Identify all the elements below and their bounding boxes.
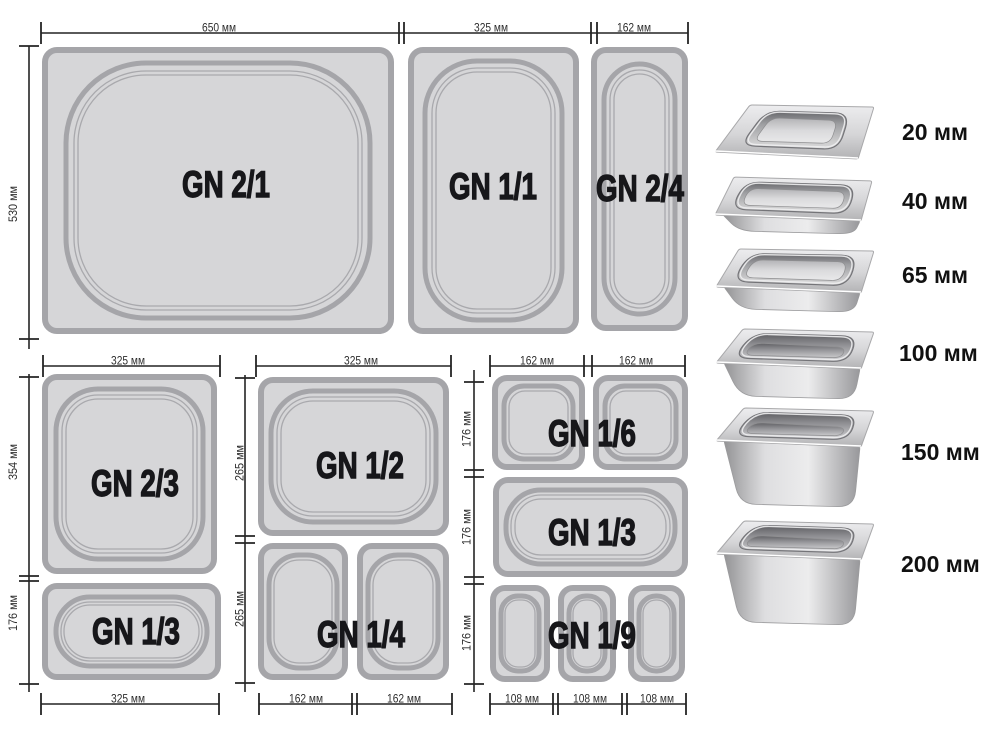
svg-text:GN 1/9: GN 1/9 — [548, 614, 636, 656]
svg-text:100 мм: 100 мм — [899, 340, 978, 366]
svg-text:GN 2/3: GN 2/3 — [91, 462, 179, 504]
svg-text:162 мм: 162 мм — [289, 692, 323, 706]
svg-text:GN 1/2: GN 1/2 — [316, 444, 404, 486]
svg-text:GN 1/4: GN 1/4 — [317, 613, 405, 655]
svg-text:20 мм: 20 мм — [902, 119, 968, 145]
svg-text:GN 1/1: GN 1/1 — [449, 165, 537, 207]
svg-text:108 мм: 108 мм — [640, 692, 674, 706]
svg-text:108 мм: 108 мм — [505, 692, 539, 706]
svg-text:GN 1/3: GN 1/3 — [548, 511, 636, 553]
svg-text:108 мм: 108 мм — [573, 692, 607, 706]
svg-text:530 мм: 530 мм — [6, 186, 20, 222]
svg-text:325 мм: 325 мм — [111, 354, 145, 368]
svg-text:325 мм: 325 мм — [474, 21, 508, 35]
svg-text:GN 2/4: GN 2/4 — [596, 167, 684, 209]
svg-text:265 мм: 265 мм — [233, 591, 247, 627]
svg-text:354 мм: 354 мм — [6, 444, 20, 480]
svg-text:176 мм: 176 мм — [460, 411, 474, 447]
svg-text:162 мм: 162 мм — [617, 21, 651, 35]
svg-text:162 мм: 162 мм — [520, 354, 554, 368]
svg-text:162 мм: 162 мм — [387, 692, 421, 706]
svg-text:200 мм: 200 мм — [901, 551, 980, 577]
svg-text:176 мм: 176 мм — [460, 615, 474, 651]
svg-text:GN 1/6: GN 1/6 — [548, 412, 636, 454]
svg-text:65 мм: 65 мм — [902, 262, 968, 288]
svg-text:176 мм: 176 мм — [460, 509, 474, 545]
svg-text:GN 1/3: GN 1/3 — [92, 610, 180, 652]
svg-text:176 мм: 176 мм — [6, 595, 20, 631]
svg-text:GN 2/1: GN 2/1 — [182, 163, 270, 205]
svg-text:650 мм: 650 мм — [202, 21, 236, 35]
svg-text:325 мм: 325 мм — [344, 354, 378, 368]
svg-text:325 мм: 325 мм — [111, 692, 145, 706]
svg-text:150 мм: 150 мм — [901, 439, 980, 465]
svg-text:162 мм: 162 мм — [619, 354, 653, 368]
svg-text:265 мм: 265 мм — [233, 445, 247, 481]
svg-text:40 мм: 40 мм — [902, 188, 968, 214]
